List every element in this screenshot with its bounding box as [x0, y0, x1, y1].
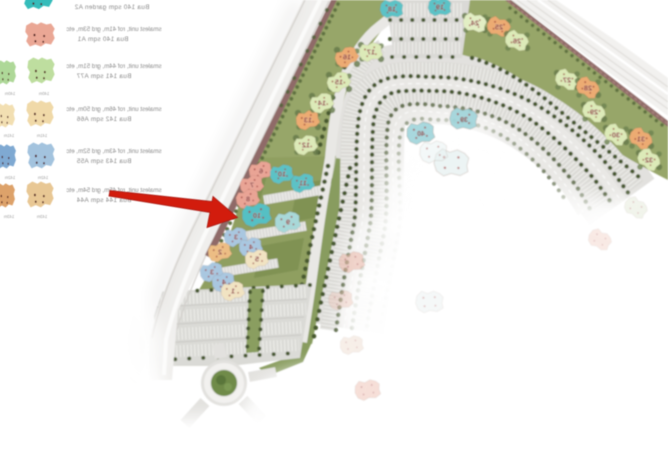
svg-text:17: 17	[367, 48, 375, 57]
svg-text:24: 24	[470, 19, 479, 28]
svg-text:12: 12	[302, 141, 310, 150]
svg-text:27: 27	[563, 76, 571, 85]
svg-text:3: 3	[234, 233, 238, 242]
svg-text:1: 1	[231, 287, 235, 296]
svg-text:10: 10	[253, 211, 261, 220]
svg-text:142m: 142m	[37, 175, 48, 180]
svg-text:3: 3	[210, 268, 214, 277]
svg-text:Bua 141 sqm A77: Bua 141 sqm A77	[76, 73, 131, 80]
svg-text:9: 9	[286, 218, 290, 227]
svg-text:141m: 141m	[36, 133, 47, 138]
svg-text:16: 16	[343, 53, 351, 62]
svg-text:40: 40	[417, 131, 425, 138]
svg-text:Bua 143 sqm A55: Bua 143 sqm A55	[76, 158, 131, 165]
svg-text:19: 19	[436, 3, 444, 12]
svg-text:7: 7	[250, 181, 254, 190]
svg-text:142m: 142m	[4, 175, 15, 180]
svg-text:30: 30	[612, 131, 620, 140]
svg-text:28: 28	[584, 84, 592, 93]
svg-text:39: 39	[460, 117, 468, 124]
svg-text:29: 29	[590, 108, 598, 117]
svg-text:31: 31	[637, 135, 645, 144]
svg-text:Bua 142 sqm A66: Bua 142 sqm A66	[76, 116, 131, 123]
svg-text:18: 18	[388, 5, 396, 14]
svg-text:13: 13	[304, 116, 312, 125]
svg-text:143m: 143m	[36, 214, 47, 219]
svg-text:14: 14	[317, 99, 326, 108]
svg-text:140m: 140m	[38, 91, 49, 96]
svg-text:10: 10	[278, 170, 286, 179]
svg-text:8: 8	[246, 195, 250, 204]
svg-text:smalest unit, rof 43m, grd 52m: smalest unit, rof 43m, grd 52m, etc	[66, 148, 161, 155]
svg-text:25: 25	[495, 23, 503, 32]
svg-text:2: 2	[218, 248, 222, 257]
svg-text:15: 15	[335, 78, 343, 87]
svg-text:6: 6	[259, 167, 263, 176]
svg-text:smalest unit, rof 46m, grd 50m: smalest unit, rof 46m, grd 50m, etc	[66, 106, 161, 113]
svg-text:143m: 143m	[3, 214, 14, 219]
svg-text:26: 26	[513, 37, 521, 46]
svg-text:32: 32	[645, 156, 653, 165]
svg-text:smalest unit, rof 41m, grd 53m: smalest unit, rof 41m, grd 53m, etc	[66, 26, 161, 33]
svg-text:141m: 141m	[3, 133, 14, 138]
svg-text:140m: 140m	[4, 91, 15, 96]
svg-text:smalest unit, rof 44m, grd 51m: smalest unit, rof 44m, grd 51m, etc	[66, 63, 161, 70]
svg-text:5: 5	[255, 255, 259, 264]
svg-text:Bua 140 sqm garden A2: Bua 140 sqm garden A2	[74, 4, 149, 11]
svg-text:Bua 140 sqm A1: Bua 140 sqm A1	[77, 36, 128, 43]
svg-text:11: 11	[299, 179, 307, 188]
